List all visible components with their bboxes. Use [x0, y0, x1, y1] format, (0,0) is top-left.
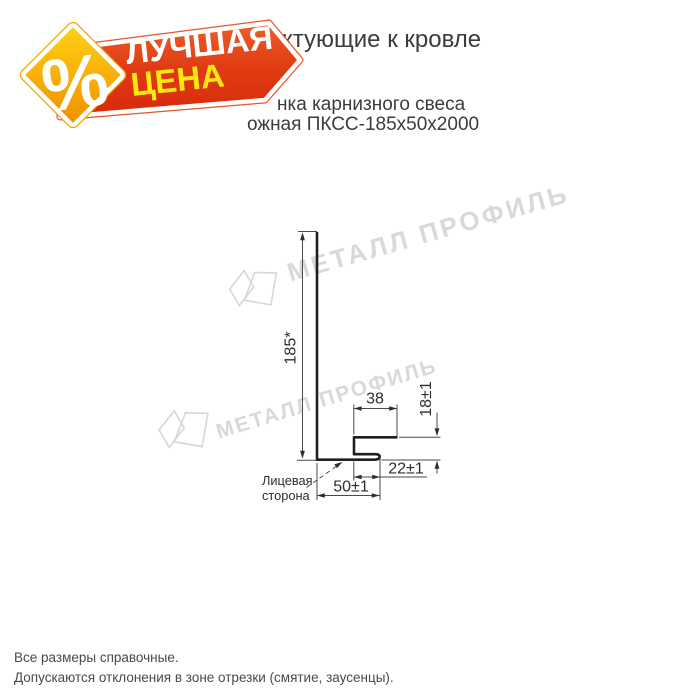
face-side-label-line1: Лицевая — [262, 473, 313, 488]
dim-label-185: 185* — [283, 332, 300, 365]
dim-label-50: 50±1 — [333, 479, 369, 496]
profile-outline — [317, 232, 398, 460]
footer-note-tolerances: Допускаются отклонения в зоне отрезки (с… — [14, 670, 394, 685]
dim-label-38: 38 — [366, 391, 384, 408]
face-side-label-line2: сторона — [262, 488, 311, 503]
dimension-lines — [303, 234, 438, 496]
dimension-arrowheads — [300, 232, 439, 498]
dim-label-22: 22±1 — [388, 461, 424, 478]
footer-note-dimensions: Все размеры справочные. — [14, 650, 179, 665]
dim-label-18: 18±1 — [418, 381, 435, 417]
profile-drawing: 185* 38 18±1 22±1 50±1 Лицевая сторона — [0, 0, 700, 700]
